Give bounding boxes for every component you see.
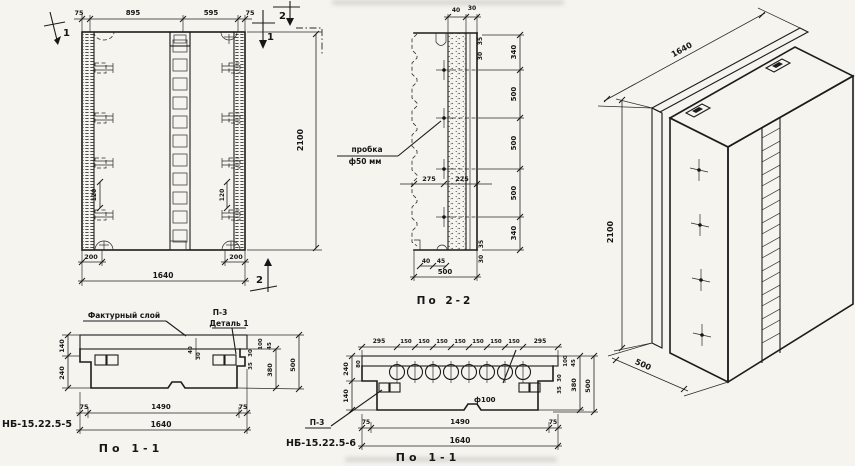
dim-label: 75: [238, 403, 248, 411]
dim-label: 75: [79, 403, 89, 411]
dim-label: 150: [472, 339, 484, 345]
plan-view-nb5: Фактурный слой П-3 Деталь 1 40 30 30 35 …: [2, 308, 304, 455]
dim-label: 35: [248, 362, 254, 370]
front-top-dims: 75 895 595 75: [74, 9, 255, 32]
technical-drawing: 120 120 75 895 595 75 200 200 1640 2100 …: [0, 0, 855, 466]
axon-keyway: [762, 118, 780, 363]
plan6-bottom-dims: 75 1490 75 1640: [358, 414, 562, 450]
dim-label: 30: [248, 349, 254, 357]
slab-top-face: [652, 28, 808, 112]
callout-text: П-3: [310, 418, 325, 427]
plan6-title: НБ-15.22.5-6: [286, 438, 356, 449]
keyway-column: [170, 32, 190, 250]
drawing-sheet: 120 120 75 895 595 75 200 200 1640 2100 …: [0, 0, 855, 466]
plan6-right-dims: 30 35 100 45 380 500: [538, 353, 598, 415]
dim-label: 120: [219, 189, 226, 202]
dim-label: 30: [196, 352, 202, 360]
concrete-band: [448, 33, 466, 250]
hole-callout: ф100: [474, 350, 516, 404]
left-edge-hatch: [83, 33, 94, 249]
front-bottom-dims: 200 200 1640: [78, 250, 249, 286]
dim-label: 35: [478, 240, 485, 248]
body-end-face: [670, 118, 728, 382]
dim-label: 30: [468, 5, 476, 12]
marker-label: 2: [279, 11, 286, 22]
embed-plates: [95, 355, 236, 365]
dim-label: 100: [563, 355, 569, 367]
dim-label: 45: [571, 359, 577, 367]
dim-label: 2100: [296, 128, 305, 151]
dim-label: 150: [508, 339, 520, 345]
dim-label: 75: [549, 419, 557, 426]
plan5-caption: По 1-1: [99, 442, 163, 455]
dim-label: 500: [289, 358, 297, 372]
dim-label: 2100: [606, 220, 615, 243]
callout-text: ф100: [474, 396, 496, 404]
dim-label: 380: [266, 363, 274, 377]
plan5-bottom-dims: 75 1490 75 1640: [76, 369, 251, 434]
pitch-dim-right: 120: [219, 179, 230, 211]
dim-label: 30: [478, 255, 485, 263]
dim-label: 40: [452, 7, 460, 14]
dim-label: 500: [510, 136, 518, 151]
section-marker-2-top: 2: [273, 1, 322, 55]
dim-label: 200: [84, 253, 98, 261]
plan6-top-dims: 295 150 150 150 150 150 150 150 295: [358, 338, 562, 356]
keyed-edge-profile: [412, 34, 417, 246]
section22-bottom-dims: 40 45 500: [410, 250, 481, 281]
dim-label: 120: [91, 189, 98, 202]
plan6-left-dims: 240 140 80: [342, 353, 377, 413]
section22-caption: По 2-2: [417, 295, 474, 307]
facing-layer: [362, 356, 558, 366]
section-marker-2-bottom: 2: [250, 258, 277, 292]
dim-label: 150: [490, 339, 502, 345]
dim-label: 1640: [153, 271, 174, 280]
dim-label: 100: [258, 338, 264, 350]
front-height-dim: 2100: [247, 31, 322, 251]
embed-plates: [379, 383, 540, 392]
dim-label: 150: [400, 339, 412, 345]
dim-label: 340: [510, 226, 518, 241]
dim-label: 240: [58, 366, 66, 380]
dim-label: 1640: [450, 436, 471, 445]
dim-label: 500: [634, 357, 653, 372]
callout-text: Фактурный слой: [88, 311, 160, 320]
slab-end-face: [652, 108, 662, 348]
facing-layer: [80, 335, 247, 349]
dim-label: 225: [455, 175, 469, 183]
dim-label: 340: [510, 45, 518, 60]
dim-label: 380: [570, 378, 578, 392]
dim-label: 200: [229, 253, 243, 261]
callout-text: Деталь 1: [209, 319, 248, 328]
dim-label: 150: [436, 339, 448, 345]
dim-label: 240: [342, 362, 350, 376]
axon-depth-dim: 500: [608, 343, 728, 396]
void-circles: [390, 361, 531, 383]
dim-label: 1490: [450, 418, 470, 426]
body-front-face: [728, 76, 853, 382]
dim-label: 500: [510, 186, 518, 201]
dim-label: 75: [245, 9, 255, 17]
dim-label: 1490: [151, 403, 171, 411]
dim-label: 35: [477, 37, 484, 45]
dim-label: 140: [342, 389, 350, 403]
plan5-title: НБ-15.22.5-5: [2, 419, 72, 430]
detail-callout: П-3 Деталь 1: [209, 308, 248, 354]
callout-text: П-3: [213, 308, 228, 317]
marker-label: 1: [63, 28, 70, 39]
dim-label: 500: [510, 87, 518, 102]
plug-callout: пробка ф50 мм: [337, 121, 441, 166]
axon-length-dim: 1640: [598, 8, 800, 108]
dim-label: 1640: [670, 40, 694, 59]
bottom-slot: [170, 241, 186, 250]
dim-label: 1640: [151, 420, 172, 429]
dim-label: 40: [422, 258, 430, 265]
axonometric-view: 1640 2100 500: [598, 8, 853, 396]
dim-label: 75: [362, 419, 370, 426]
dim-label: 500: [584, 379, 592, 393]
front-elevation-view: 120 120 75 895 595 75 200 200 1640 2100 …: [44, 1, 322, 292]
dim-label: 595: [204, 9, 219, 17]
plan-view-nb6: 295 150 150 150 150 150 150 150 295 ф100…: [286, 338, 598, 464]
plan6-caption: По 1-1: [396, 451, 460, 464]
dim-label: 500: [438, 268, 453, 276]
section-marker-1-right: 1: [252, 10, 275, 49]
section22-mid-dims: 275 225: [400, 175, 492, 187]
axon-height-dim: 2100: [606, 97, 652, 351]
dim-label: 150: [418, 339, 430, 345]
dim-label: 45: [437, 258, 445, 265]
dim-label: 35: [557, 386, 563, 394]
marker-label: 1: [267, 32, 274, 43]
dim-label: 895: [126, 9, 141, 17]
dim-label: 30: [477, 52, 484, 60]
marker-label: 2: [256, 275, 263, 286]
dim-label: 150: [454, 339, 466, 345]
callout-text: пробка: [351, 145, 382, 154]
dim-label: 295: [534, 338, 547, 345]
dim-label: 30: [557, 374, 563, 382]
slot-section: [436, 33, 446, 46]
section22-right-dims: 340 500 500 500 340: [482, 32, 524, 253]
section-marker-1-left: 1: [44, 12, 70, 45]
dim-label: 75: [74, 9, 84, 17]
body-section-outline: [362, 366, 553, 410]
lifting-loop-recess: [94, 32, 114, 40]
right-edge-hatch: [234, 33, 245, 249]
dim-label: 295: [373, 338, 386, 345]
dim-label: 140: [58, 339, 66, 353]
section-2-2-view: пробка ф50 мм 340 500 500 500 340 40 30 …: [337, 5, 524, 307]
callout-text: ф50 мм: [349, 157, 382, 166]
facing-callout: Фактурный слой: [83, 311, 186, 336]
dim-label: 275: [422, 175, 436, 183]
axon-plug-marks: [690, 159, 711, 346]
dim-label: 80: [356, 360, 362, 368]
dim-label: 40: [188, 346, 194, 354]
